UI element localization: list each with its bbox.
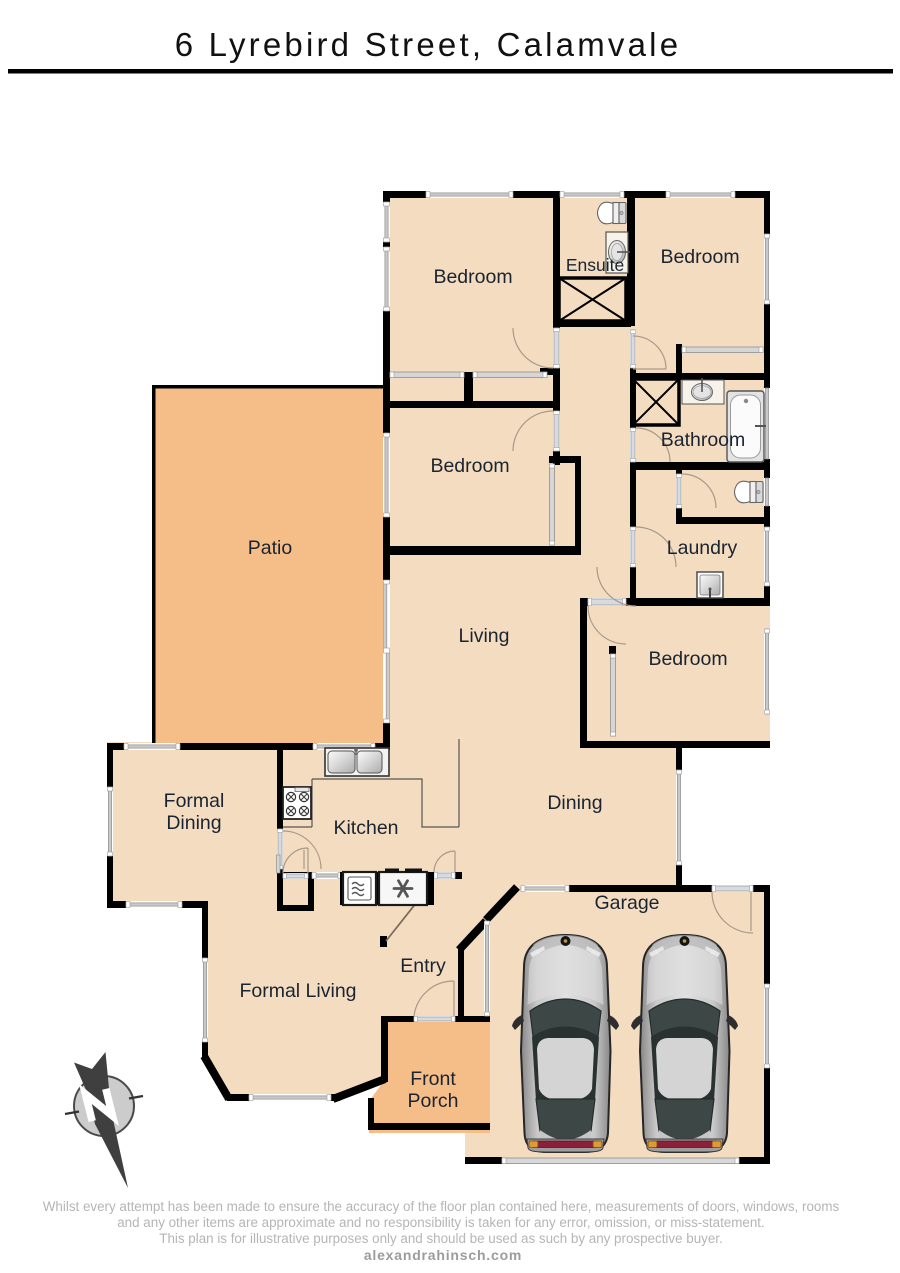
svg-text:Kitchen: Kitchen xyxy=(333,817,398,839)
svg-text:Bedroom: Bedroom xyxy=(433,266,512,288)
svg-text:Dining: Dining xyxy=(547,792,602,814)
svg-text:Porch: Porch xyxy=(408,1090,459,1112)
svg-text:Formal: Formal xyxy=(164,790,225,812)
svg-text:alexandrahinsch.com: alexandrahinsch.com xyxy=(364,1247,522,1263)
svg-text:This plan is for illustrative: This plan is for illustrative purposes o… xyxy=(159,1231,722,1246)
svg-text:Bathroom: Bathroom xyxy=(661,429,746,451)
svg-text:Dining: Dining xyxy=(166,812,221,834)
svg-text:Bedroom: Bedroom xyxy=(430,455,509,477)
svg-text:Garage: Garage xyxy=(594,892,659,914)
svg-text:Formal Living: Formal Living xyxy=(239,980,356,1002)
svg-text:Living: Living xyxy=(459,625,510,647)
svg-text:and any other items are approx: and any other items are approximate and … xyxy=(117,1215,765,1230)
svg-text:Whilst every attempt has been: Whilst every attempt has been made to en… xyxy=(43,1199,840,1214)
svg-text:Patio: Patio xyxy=(248,537,293,559)
svg-text:Bedroom: Bedroom xyxy=(648,648,727,670)
svg-text:Bedroom: Bedroom xyxy=(660,246,739,268)
svg-text:Entry: Entry xyxy=(400,955,446,977)
svg-text:6 Lyrebird Street, Calamvale: 6 Lyrebird Street, Calamvale xyxy=(175,26,682,63)
svg-text:Laundry: Laundry xyxy=(667,537,738,559)
svg-text:Ensuite: Ensuite xyxy=(566,255,624,275)
svg-text:Front: Front xyxy=(410,1068,456,1090)
